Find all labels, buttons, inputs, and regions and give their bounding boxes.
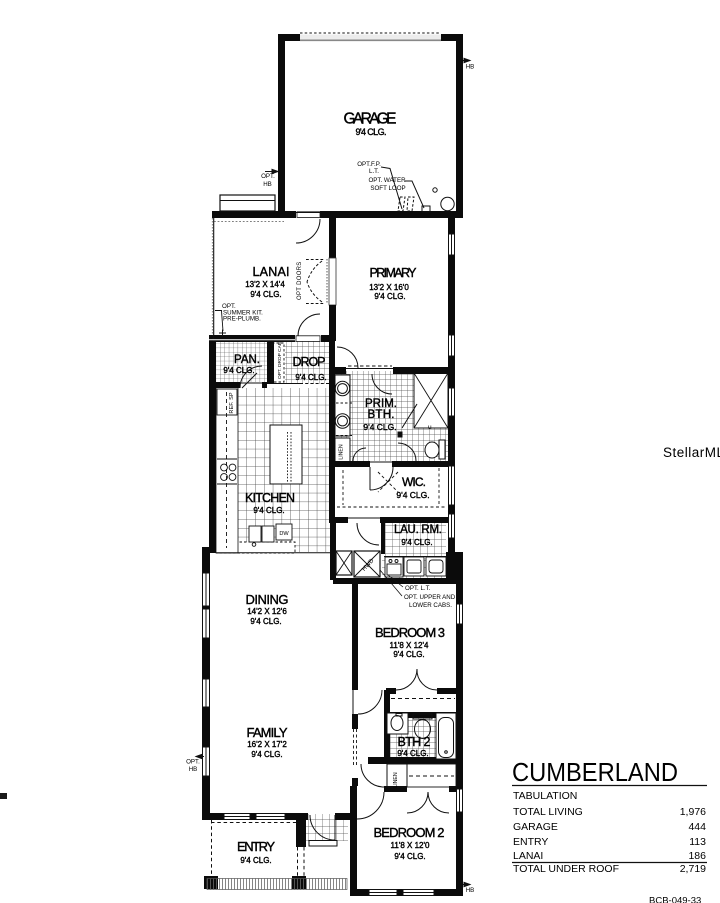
svg-text:9'4 CLG.: 9'4 CLG. [374, 292, 405, 301]
svg-text:OPT.: OPT. [261, 173, 275, 180]
svg-text:L.T.: L.T. [369, 168, 379, 175]
svg-text:OPT. L.T.: OPT. L.T. [405, 585, 431, 592]
svg-text:TOTAL LIVING: TOTAL LIVING [513, 806, 583, 818]
svg-text:9'4 CLG.: 9'4 CLG. [401, 538, 432, 547]
svg-text:9'4 CLG.: 9'4 CLG. [250, 290, 281, 299]
svg-text:LINEN: LINEN [339, 444, 345, 460]
svg-text:OPT DOORS: OPT DOORS [297, 261, 303, 300]
svg-text:KITCHEN: KITCHEN [245, 491, 295, 505]
svg-text:SOFT LOOP: SOFT LOOP [370, 185, 405, 192]
svg-text:OPT.: OPT. [186, 759, 200, 766]
svg-text:DW: DW [279, 531, 289, 537]
svg-text:HB: HB [263, 181, 272, 188]
svg-text:u: u [428, 424, 432, 431]
svg-text:OPT. DROP CAB.: OPT. DROP CAB. [277, 341, 283, 379]
svg-text:9'4 CLG.: 9'4 CLG. [223, 366, 254, 375]
svg-text:BTH.: BTH. [368, 409, 395, 421]
svg-text:LOWER CABS.: LOWER CABS. [409, 602, 452, 609]
svg-text:9'4 CLG.: 9'4 CLG. [253, 506, 284, 515]
svg-text:9'4 CLG.: 9'4 CLG. [356, 127, 387, 137]
svg-text:444: 444 [688, 821, 706, 833]
svg-text:HB: HB [466, 887, 475, 894]
svg-text:1,976: 1,976 [680, 806, 706, 818]
svg-text:DINING: DINING [246, 592, 289, 607]
svg-text:REF. SP: REF. SP [229, 392, 235, 413]
svg-text:186: 186 [688, 850, 706, 862]
svg-text:9'4 CLG.: 9'4 CLG. [393, 650, 424, 659]
svg-text:9'4 CLG.: 9'4 CLG. [240, 856, 271, 865]
svg-text:StellarMLS: StellarMLS [663, 445, 720, 460]
svg-text:HB: HB [466, 64, 475, 71]
svg-text:BEDROOM 3: BEDROOM 3 [375, 625, 445, 640]
svg-text:LINEN: LINEN [393, 772, 399, 788]
svg-text:WIC.: WIC. [402, 475, 426, 489]
svg-text:BCB-049-33: BCB-049-33 [649, 896, 701, 903]
svg-text:ENTRY: ENTRY [513, 836, 548, 848]
svg-text:TOTAL UNDER ROOF: TOTAL UNDER ROOF [513, 863, 619, 875]
svg-text:LAU. RM.: LAU. RM. [394, 524, 442, 536]
svg-text:11'8 X 12'4: 11'8 X 12'4 [390, 641, 429, 650]
svg-text:PAN.: PAN. [234, 354, 260, 366]
svg-text:LANAI: LANAI [513, 850, 543, 862]
svg-text:HB: HB [189, 766, 198, 773]
svg-text:GARAGE: GARAGE [513, 821, 558, 833]
svg-text:TABULATION: TABULATION [513, 790, 577, 802]
svg-text:BTH 2: BTH 2 [398, 735, 431, 749]
svg-text:9'4 CLG.: 9'4 CLG. [363, 422, 396, 432]
svg-text:CUMBERLAND: CUMBERLAND [512, 759, 678, 787]
svg-text:DROP: DROP [293, 355, 326, 369]
svg-text:14'2 X 12'6: 14'2 X 12'6 [247, 607, 287, 616]
svg-text:13'2 X 16'0: 13'2 X 16'0 [369, 283, 409, 292]
svg-text:BEDROOM 2: BEDROOM 2 [374, 825, 445, 840]
svg-text:FAMILY: FAMILY [247, 725, 288, 740]
svg-text:9'4 CLG.: 9'4 CLG. [295, 373, 326, 382]
svg-text:PRIMARY: PRIMARY [370, 266, 418, 280]
svg-text:2,719: 2,719 [680, 863, 706, 875]
svg-text:113: 113 [689, 836, 706, 848]
svg-text:11'8 X 12'0: 11'8 X 12'0 [391, 841, 430, 850]
svg-text:OPT. UPPER AND: OPT. UPPER AND [404, 594, 456, 601]
svg-text:9'4 CLG.: 9'4 CLG. [250, 617, 281, 626]
svg-text:9'4 CLG.: 9'4 CLG. [397, 749, 428, 758]
svg-text:OPT.F.P.: OPT.F.P. [357, 161, 381, 168]
svg-text:9'4 CLG.: 9'4 CLG. [251, 750, 282, 759]
svg-text:9'4 CLG.: 9'4 CLG. [396, 490, 429, 500]
svg-text:PRE-PLUMB.: PRE-PLUMB. [223, 316, 261, 323]
svg-text:LANAI: LANAI [253, 265, 290, 279]
svg-text:GARAGE: GARAGE [344, 111, 397, 128]
svg-text:OPT. WATER: OPT. WATER [368, 177, 406, 184]
svg-text:ENTRY: ENTRY [237, 839, 275, 854]
svg-text:9'4 CLG.: 9'4 CLG. [394, 852, 425, 861]
svg-text:16'2 X 17'2: 16'2 X 17'2 [247, 740, 287, 749]
svg-text:13'2 X 14'4: 13'2 X 14'4 [245, 280, 285, 289]
